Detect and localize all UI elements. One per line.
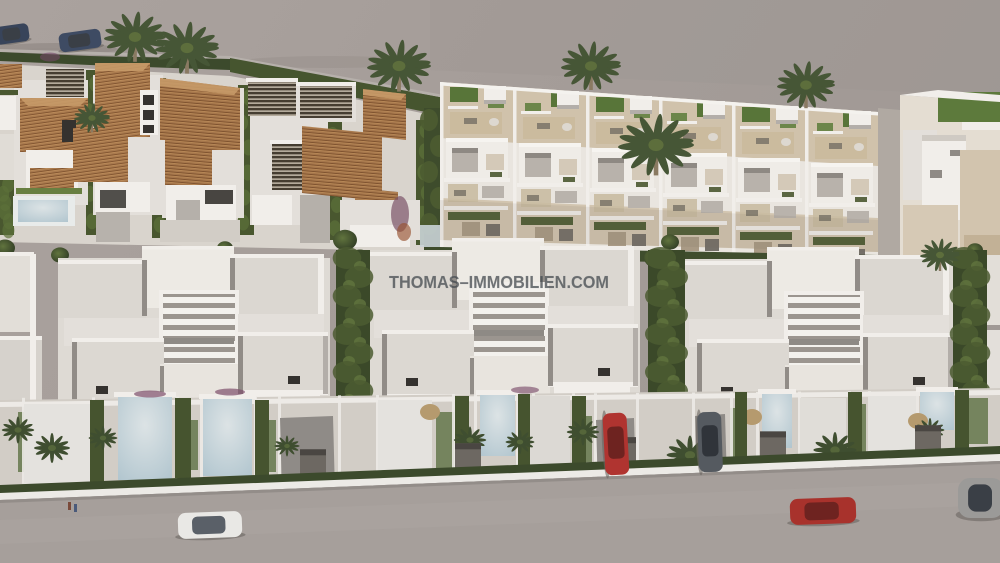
svg-text:THOMAS–IMMOBILIEN.COM: THOMAS–IMMOBILIEN.COM: [389, 272, 609, 292]
